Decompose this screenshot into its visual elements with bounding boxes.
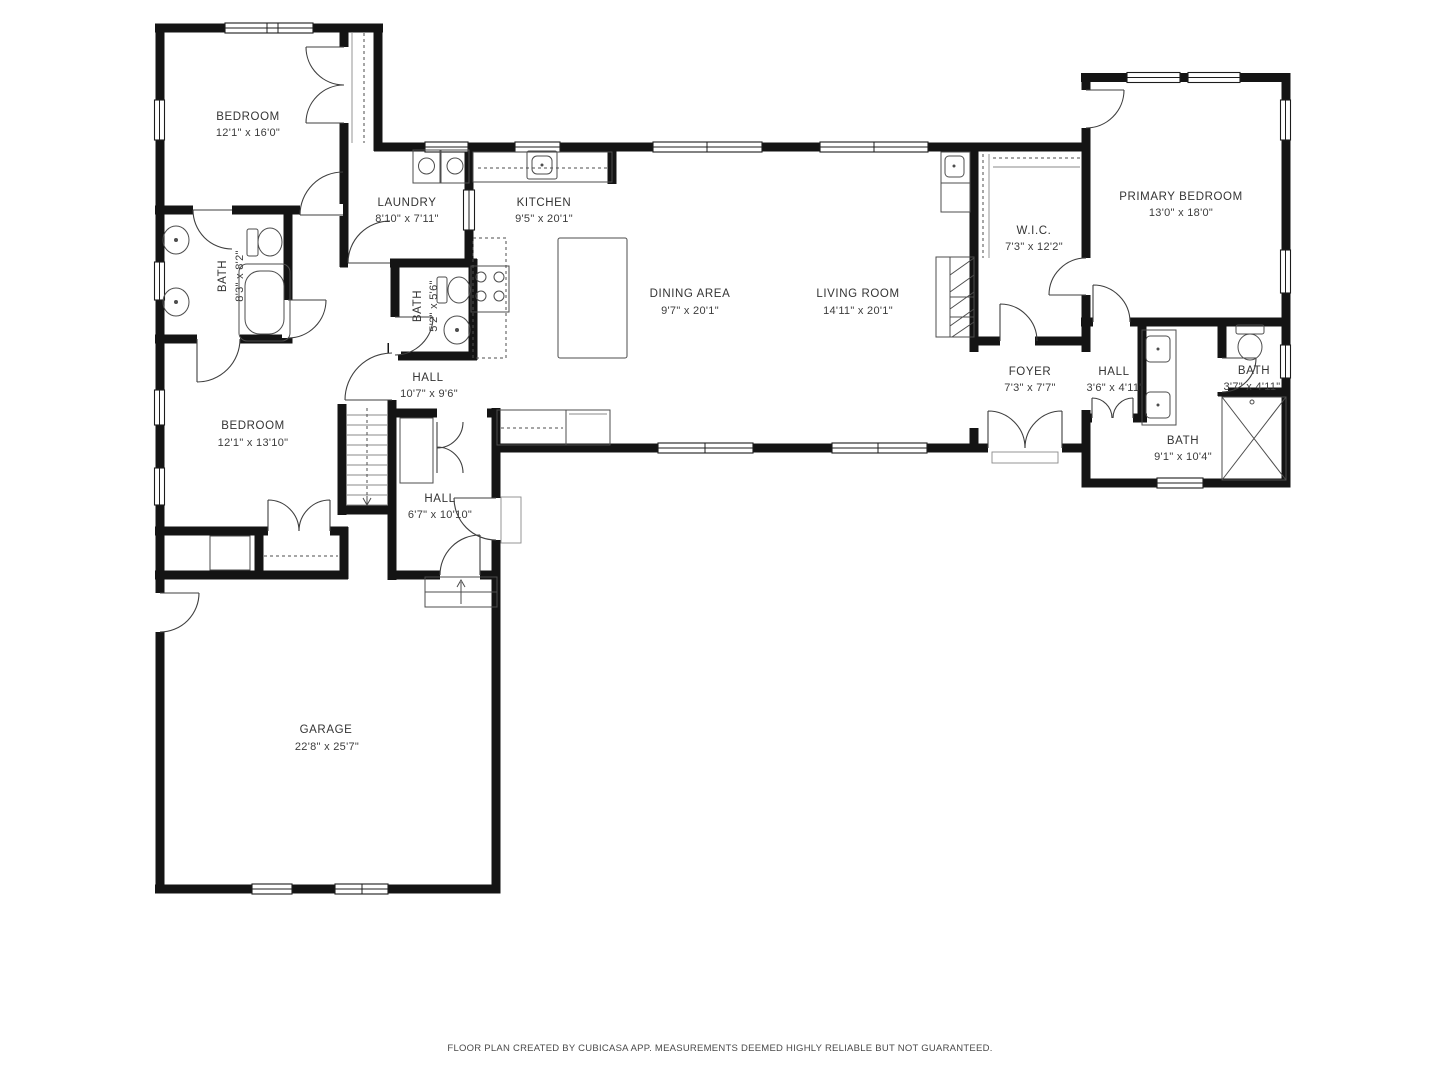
- room-dims-living-room: 14'11" x 20'1": [823, 305, 893, 317]
- room-dims-garage: 22'8" x 25'7": [295, 741, 359, 753]
- room-dims-bath-kitchen: 5'2" x 5'6": [428, 280, 440, 331]
- doors-layer: [160, 47, 1256, 632]
- room-dims-wic: 7'3" x 12'2": [1005, 241, 1063, 253]
- room-label-living-room: LIVING ROOM: [816, 288, 899, 300]
- hall-pantry-closet: [497, 410, 610, 445]
- room-dims-bedroom-1: 12'1" x 16'0": [216, 127, 280, 139]
- fireplace: [936, 257, 974, 337]
- room-label-dining-area: DINING AREA: [650, 288, 731, 300]
- stairs: [346, 408, 388, 505]
- hall-lower-closet: [400, 418, 433, 483]
- room-label-garage: GARAGE: [300, 724, 353, 736]
- front-landing: [501, 497, 521, 543]
- windows-layer: [155, 23, 1291, 894]
- room-label-hall-lower: HALL: [424, 493, 455, 505]
- room-dims-laundry: 8'10" x 7'11": [375, 213, 438, 225]
- kitchen-island: [558, 238, 627, 358]
- room-label-wic: W.I.C.: [1017, 225, 1052, 237]
- kitchen-counter: [473, 151, 612, 182]
- floor-plan-canvas: BEDROOM 12'1" x 16'0" LAUNDRY 8'10" x 7'…: [0, 0, 1440, 1080]
- room-label-bath-primary: BATH: [1167, 435, 1199, 447]
- wet-bar: [941, 152, 970, 212]
- room-label-bath-kitchen: BATH: [412, 290, 424, 322]
- bedroom2-closets: [210, 536, 338, 570]
- labels-layer: BEDROOM 12'1" x 16'0" LAUNDRY 8'10" x 7'…: [216, 111, 1281, 753]
- shower: [1222, 397, 1286, 480]
- room-dims-bath-primary: 9'1" x 10'4": [1154, 451, 1212, 463]
- laundry-washer-dryer: [413, 150, 469, 183]
- bath-small-toilet: [1236, 325, 1264, 360]
- room-dims-hall-lower: 6'7" x 10'10": [408, 509, 472, 521]
- bath-kitchen-fixtures: [437, 277, 470, 344]
- floor-plan-page: BEDROOM 12'1" x 16'0" LAUNDRY 8'10" x 7'…: [0, 0, 1440, 1080]
- room-dims-bedroom-2: 12'1" x 13'10": [218, 437, 289, 449]
- room-label-bedroom-2: BEDROOM: [221, 420, 285, 432]
- room-label-hall-right: HALL: [1098, 366, 1129, 378]
- room-label-foyer: FOYER: [1009, 366, 1052, 378]
- room-label-bath-left: BATH: [217, 260, 229, 292]
- footer-disclaimer: FLOOR PLAN CREATED BY CUBICASA APP. MEAS…: [447, 1043, 992, 1054]
- room-label-bath-small: BATH: [1238, 365, 1270, 377]
- bedroom1-closet: [352, 33, 364, 143]
- room-dims-bath-small: 3'7" x 4'11": [1224, 381, 1281, 393]
- room-dims-hall-right: 3'6" x 4'11": [1087, 382, 1144, 394]
- room-label-hall-center: HALL: [412, 372, 443, 384]
- room-label-kitchen: KITCHEN: [517, 197, 572, 209]
- garage-entry-steps: [425, 577, 497, 607]
- walls-layer: [155, 24, 1290, 894]
- room-dims-foyer: 7'3" x 7'7": [1004, 382, 1055, 394]
- room-dims-primary-bedroom: 13'0" x 18'0": [1149, 207, 1213, 219]
- room-label-laundry: LAUNDRY: [378, 197, 437, 209]
- room-dims-kitchen: 9'5" x 20'1": [515, 213, 573, 225]
- room-dims-hall-center: 10'7" x 9'6": [400, 388, 458, 400]
- room-dims-dining-area: 9'7" x 20'1": [661, 305, 719, 317]
- primary-bath-vanity: [1142, 330, 1176, 425]
- room-label-bedroom-1: BEDROOM: [216, 111, 280, 123]
- room-dims-bath-left: 8'3" x 8'2": [234, 250, 246, 301]
- room-label-primary-bedroom: PRIMARY BEDROOM: [1119, 191, 1243, 203]
